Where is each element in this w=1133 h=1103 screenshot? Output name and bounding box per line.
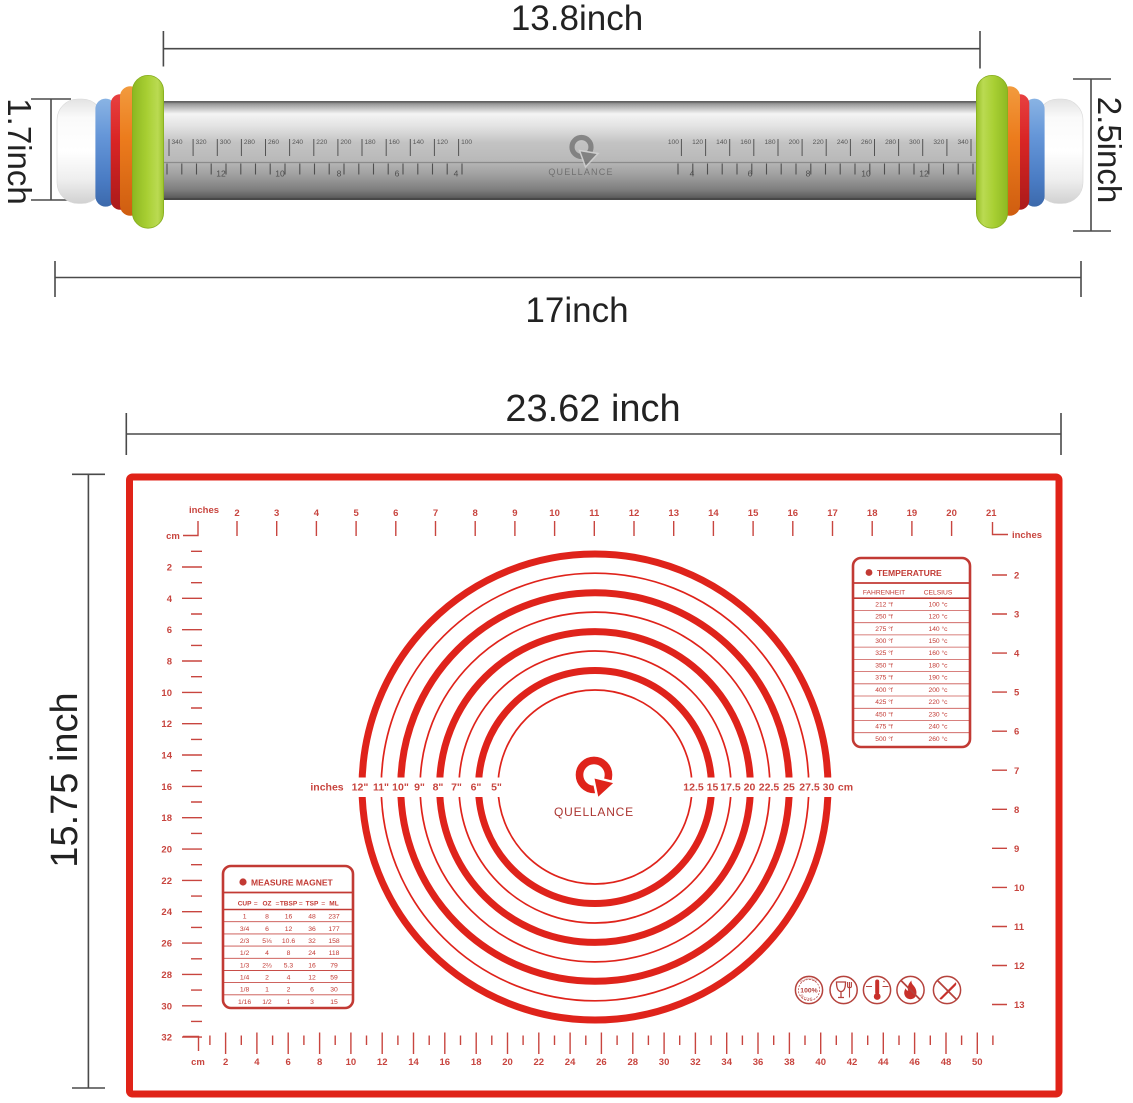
svg-text:12: 12 xyxy=(377,1057,388,1068)
svg-text:12.5: 12.5 xyxy=(683,782,704,794)
svg-text:32: 32 xyxy=(308,938,316,945)
svg-text:13: 13 xyxy=(668,508,679,519)
svg-text:38: 38 xyxy=(784,1057,795,1068)
svg-text:350 °f: 350 °f xyxy=(875,661,893,669)
svg-text:4: 4 xyxy=(254,1057,260,1068)
svg-text:120 °c: 120 °c xyxy=(928,613,948,621)
svg-text:3: 3 xyxy=(310,999,314,1006)
svg-text:8: 8 xyxy=(806,169,811,179)
svg-text:180: 180 xyxy=(764,139,775,146)
svg-text:1/4: 1/4 xyxy=(240,975,250,982)
svg-text:32: 32 xyxy=(161,1033,172,1044)
svg-text:OZ: OZ xyxy=(262,901,271,908)
svg-text:3: 3 xyxy=(1014,610,1019,621)
svg-text:16: 16 xyxy=(285,914,293,921)
svg-text:20: 20 xyxy=(744,782,756,794)
svg-text:1/8: 1/8 xyxy=(240,987,250,994)
svg-text:260: 260 xyxy=(861,139,872,146)
svg-text:8: 8 xyxy=(337,169,342,179)
svg-text:22: 22 xyxy=(161,876,172,887)
svg-text:79: 79 xyxy=(330,962,338,969)
svg-text:10": 10" xyxy=(392,782,409,794)
svg-text:4: 4 xyxy=(265,950,269,957)
svg-text:30: 30 xyxy=(161,1001,172,1012)
svg-text:158: 158 xyxy=(328,938,340,945)
svg-text:1/16: 1/16 xyxy=(238,999,251,1006)
svg-text:36: 36 xyxy=(753,1057,764,1068)
svg-text:8: 8 xyxy=(1014,805,1019,816)
svg-text:320: 320 xyxy=(196,139,207,146)
svg-text:340: 340 xyxy=(957,139,968,146)
svg-text:1: 1 xyxy=(287,999,291,1006)
svg-text:19: 19 xyxy=(907,508,918,519)
svg-text:7: 7 xyxy=(1014,766,1019,777)
svg-text:320: 320 xyxy=(933,139,944,146)
svg-text:250 °f: 250 °f xyxy=(875,613,893,621)
svg-text:48: 48 xyxy=(941,1057,952,1068)
svg-text:12: 12 xyxy=(629,508,640,519)
svg-text:2.5inch: 2.5inch xyxy=(1091,97,1128,203)
svg-text:275 °f: 275 °f xyxy=(875,625,893,633)
svg-text:100: 100 xyxy=(461,139,472,146)
svg-text:2: 2 xyxy=(265,975,269,982)
svg-text:500 °f: 500 °f xyxy=(875,735,893,743)
svg-text:3: 3 xyxy=(274,508,279,519)
svg-text:5⅓: 5⅓ xyxy=(262,938,272,945)
svg-text:18: 18 xyxy=(867,508,878,519)
svg-text:177: 177 xyxy=(328,926,340,933)
svg-text:6: 6 xyxy=(748,169,753,179)
svg-text:25: 25 xyxy=(783,782,795,794)
svg-text:20: 20 xyxy=(161,845,172,856)
svg-text:6: 6 xyxy=(265,926,269,933)
svg-text:100%: 100% xyxy=(800,988,817,995)
svg-text:340: 340 xyxy=(172,139,183,146)
svg-text:cm: cm xyxy=(191,1057,205,1068)
svg-text:18: 18 xyxy=(161,813,172,824)
svg-text:237: 237 xyxy=(328,914,340,921)
svg-text:230 °c: 230 °c xyxy=(928,710,948,718)
svg-text:4: 4 xyxy=(167,594,173,605)
svg-text:300 °f: 300 °f xyxy=(875,637,893,645)
svg-text:TBSP: TBSP xyxy=(280,901,298,908)
svg-text:cm: cm xyxy=(166,531,180,542)
svg-text:20: 20 xyxy=(946,508,957,519)
svg-text:7": 7" xyxy=(451,782,462,794)
svg-text:12: 12 xyxy=(308,975,316,982)
svg-text:22: 22 xyxy=(534,1057,545,1068)
svg-text:13: 13 xyxy=(1014,1000,1025,1011)
svg-text:5": 5" xyxy=(491,782,502,794)
svg-text:14: 14 xyxy=(161,751,172,762)
svg-text:27.5: 27.5 xyxy=(799,782,820,794)
svg-text:6: 6 xyxy=(310,987,314,994)
svg-text:450 °f: 450 °f xyxy=(875,710,893,718)
svg-text:220 °c: 220 °c xyxy=(928,698,948,706)
svg-text:8: 8 xyxy=(473,508,478,519)
svg-text:5.3: 5.3 xyxy=(284,962,294,969)
svg-text:15.75 inch: 15.75 inch xyxy=(44,692,86,867)
svg-text:8: 8 xyxy=(167,657,172,668)
svg-text:16: 16 xyxy=(161,782,172,793)
svg-text:140 °c: 140 °c xyxy=(928,625,948,633)
svg-text:16: 16 xyxy=(308,962,316,969)
svg-text:10.6: 10.6 xyxy=(282,938,295,945)
svg-text:59: 59 xyxy=(330,975,338,982)
svg-text:CUP: CUP xyxy=(238,901,252,908)
svg-text:475 °f: 475 °f xyxy=(875,723,893,731)
svg-text:11": 11" xyxy=(373,782,389,794)
svg-text:30: 30 xyxy=(659,1057,670,1068)
svg-text:4: 4 xyxy=(454,169,459,179)
svg-text:2: 2 xyxy=(167,563,172,574)
svg-text:8: 8 xyxy=(287,950,291,957)
svg-text:2⅔: 2⅔ xyxy=(262,962,272,969)
svg-text:36: 36 xyxy=(308,926,316,933)
svg-text:12": 12" xyxy=(352,782,369,794)
svg-text:180 °c: 180 °c xyxy=(928,661,948,669)
svg-text:9: 9 xyxy=(1014,844,1019,855)
svg-text:10: 10 xyxy=(161,688,172,699)
svg-text:TEMPERATURE: TEMPERATURE xyxy=(877,568,942,578)
svg-text:220: 220 xyxy=(813,139,824,146)
svg-text:24: 24 xyxy=(161,907,172,918)
svg-text:240: 240 xyxy=(292,139,303,146)
svg-text:5: 5 xyxy=(353,508,359,519)
svg-text:160 °c: 160 °c xyxy=(928,649,948,657)
svg-text:212 °f: 212 °f xyxy=(875,600,893,608)
svg-text:240 °c: 240 °c xyxy=(928,723,948,731)
svg-text:6: 6 xyxy=(286,1057,291,1068)
svg-text:14: 14 xyxy=(408,1057,419,1068)
svg-text:400 °f: 400 °f xyxy=(875,686,893,694)
svg-text:FAHRENHEIT: FAHRENHEIT xyxy=(863,590,905,597)
svg-text:4: 4 xyxy=(690,169,695,179)
svg-text:15: 15 xyxy=(707,782,719,794)
svg-text:2: 2 xyxy=(223,1057,228,1068)
svg-text:48: 48 xyxy=(308,914,316,921)
svg-text:44: 44 xyxy=(878,1057,889,1068)
svg-text:23.62 inch: 23.62 inch xyxy=(505,388,680,430)
svg-text:4: 4 xyxy=(1014,649,1020,660)
svg-text:6: 6 xyxy=(395,169,400,179)
svg-text:1/2: 1/2 xyxy=(240,950,250,957)
svg-text:118: 118 xyxy=(329,950,340,957)
svg-text:300: 300 xyxy=(909,139,920,146)
svg-text:8: 8 xyxy=(265,914,269,921)
svg-text:inches: inches xyxy=(189,505,219,516)
svg-text:6: 6 xyxy=(167,625,172,636)
svg-text:10: 10 xyxy=(275,169,285,179)
svg-text:30: 30 xyxy=(330,987,338,994)
svg-text:280: 280 xyxy=(885,139,896,146)
svg-text:2/3: 2/3 xyxy=(240,938,250,945)
svg-text:24: 24 xyxy=(565,1057,576,1068)
svg-text:260 °c: 260 °c xyxy=(928,735,948,743)
svg-text:12: 12 xyxy=(919,169,929,179)
svg-text:120: 120 xyxy=(692,139,703,146)
svg-text:9: 9 xyxy=(512,508,517,519)
svg-text:30: 30 xyxy=(823,782,835,794)
svg-text:=: = xyxy=(276,901,280,908)
svg-text:12: 12 xyxy=(161,719,172,730)
svg-text:220: 220 xyxy=(316,139,327,146)
svg-text:12: 12 xyxy=(216,169,226,179)
svg-text:2: 2 xyxy=(234,508,239,519)
svg-text:12: 12 xyxy=(1014,961,1025,972)
svg-text:260: 260 xyxy=(268,139,279,146)
svg-text:22.5: 22.5 xyxy=(759,782,780,794)
svg-text:1/3: 1/3 xyxy=(240,962,250,969)
svg-text:160: 160 xyxy=(740,139,751,146)
svg-text:26: 26 xyxy=(161,939,172,950)
svg-text:13.8inch: 13.8inch xyxy=(511,0,643,38)
svg-text:100: 100 xyxy=(668,139,679,146)
svg-text:7: 7 xyxy=(433,508,438,519)
svg-text:21: 21 xyxy=(986,508,997,519)
svg-text:140: 140 xyxy=(716,139,727,146)
svg-text:120: 120 xyxy=(437,139,448,146)
svg-text:=: = xyxy=(299,901,303,908)
svg-text:200 °c: 200 °c xyxy=(928,686,948,694)
svg-text:28: 28 xyxy=(628,1057,639,1068)
svg-text:=: = xyxy=(321,901,325,908)
svg-text:1: 1 xyxy=(243,914,247,921)
svg-text:4: 4 xyxy=(287,975,291,982)
svg-text:50: 50 xyxy=(972,1057,983,1068)
svg-text:=: = xyxy=(254,901,258,908)
svg-text:1.7inch: 1.7inch xyxy=(1,98,38,204)
svg-text:200: 200 xyxy=(340,139,351,146)
svg-text:280: 280 xyxy=(244,139,255,146)
svg-text:300: 300 xyxy=(220,139,231,146)
svg-text:TSP: TSP xyxy=(306,901,319,908)
svg-text:17inch: 17inch xyxy=(525,291,628,330)
svg-text:10: 10 xyxy=(549,508,560,519)
svg-text:10: 10 xyxy=(346,1057,357,1068)
svg-text:ML: ML xyxy=(329,901,338,908)
svg-text:325 °f: 325 °f xyxy=(875,649,893,657)
svg-text:240: 240 xyxy=(837,139,848,146)
svg-text:375 °f: 375 °f xyxy=(875,674,893,682)
svg-text:2: 2 xyxy=(1014,571,1019,582)
svg-text:26: 26 xyxy=(596,1057,607,1068)
svg-text:6: 6 xyxy=(393,508,398,519)
svg-text:42: 42 xyxy=(847,1057,858,1068)
svg-text:1/2: 1/2 xyxy=(262,999,272,1006)
svg-text:inches: inches xyxy=(310,782,343,794)
svg-text:150 °c: 150 °c xyxy=(928,637,948,645)
svg-text:17: 17 xyxy=(827,508,838,519)
svg-text:28: 28 xyxy=(161,970,172,981)
svg-text:190 °c: 190 °c xyxy=(928,674,948,682)
svg-text:11: 11 xyxy=(589,508,600,519)
svg-text:3/4: 3/4 xyxy=(240,926,250,933)
svg-text:4: 4 xyxy=(314,508,320,519)
svg-text:100 °c: 100 °c xyxy=(928,600,948,608)
svg-text:6: 6 xyxy=(1014,727,1019,738)
svg-text:11: 11 xyxy=(1014,922,1025,933)
svg-text:15: 15 xyxy=(330,999,338,1006)
svg-text:32: 32 xyxy=(690,1057,701,1068)
svg-text:6": 6" xyxy=(471,782,482,794)
svg-text:12: 12 xyxy=(285,926,293,933)
svg-text:8": 8" xyxy=(433,782,444,794)
svg-text:200: 200 xyxy=(789,139,800,146)
svg-text:15: 15 xyxy=(748,508,759,519)
svg-text:24: 24 xyxy=(308,950,316,957)
svg-text:5: 5 xyxy=(1014,688,1020,699)
svg-text:425 °f: 425 °f xyxy=(875,698,893,706)
svg-text:8: 8 xyxy=(317,1057,322,1068)
svg-text:inches: inches xyxy=(1012,530,1042,541)
svg-text:10: 10 xyxy=(1014,883,1025,894)
svg-text:9": 9" xyxy=(414,782,425,794)
svg-text:17.5: 17.5 xyxy=(720,782,741,794)
svg-text:10: 10 xyxy=(861,169,871,179)
svg-text:14: 14 xyxy=(708,508,719,519)
svg-text:40: 40 xyxy=(815,1057,826,1068)
svg-text:QUELLANCE: QUELLANCE xyxy=(554,805,634,819)
svg-text:140: 140 xyxy=(413,139,424,146)
svg-text:16: 16 xyxy=(788,508,799,519)
svg-text:34: 34 xyxy=(721,1057,732,1068)
svg-text:MEASURE MAGNET: MEASURE MAGNET xyxy=(251,878,334,888)
svg-text:1: 1 xyxy=(265,987,269,994)
svg-text:18: 18 xyxy=(471,1057,482,1068)
svg-text:2: 2 xyxy=(287,987,291,994)
svg-text:46: 46 xyxy=(909,1057,920,1068)
svg-text:CELSIUS: CELSIUS xyxy=(924,590,953,597)
svg-text:180: 180 xyxy=(365,139,376,146)
svg-text:20: 20 xyxy=(502,1057,513,1068)
svg-text:QUELLANCE: QUELLANCE xyxy=(548,167,613,177)
svg-text:16: 16 xyxy=(440,1057,451,1068)
svg-text:160: 160 xyxy=(389,139,400,146)
svg-text:cm: cm xyxy=(838,782,853,794)
